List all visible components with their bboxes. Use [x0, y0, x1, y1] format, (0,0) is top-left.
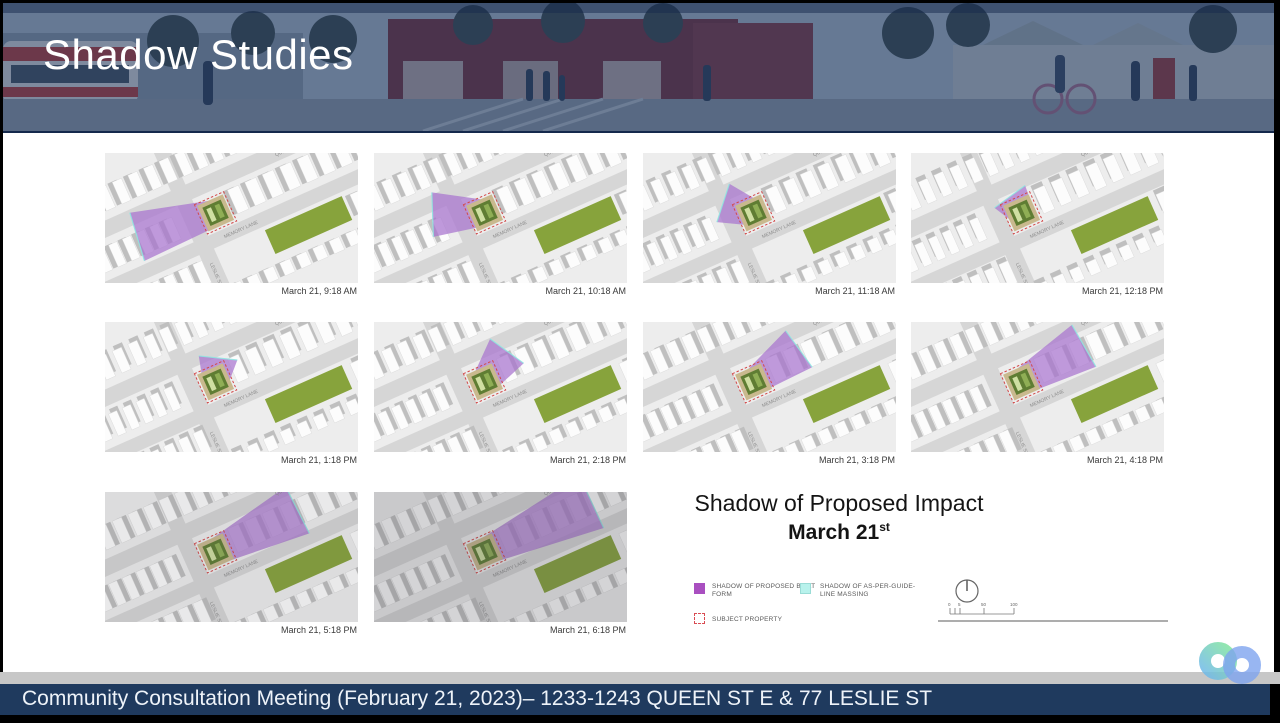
scale-tick: 50	[981, 602, 987, 607]
shadow-map-panel: QUEEN STMEMORY LANELESLIE STMarch 21, 11…	[643, 153, 896, 296]
legend-swatch-subject-property	[694, 613, 705, 624]
page-title: Shadow Studies	[43, 31, 354, 79]
shadow-map: QUEEN STMEMORY LANELESLIE ST	[105, 153, 358, 283]
panel-timestamp: March 21, 11:18 AM	[643, 286, 896, 296]
shadow-map-panel: QUEEN STMEMORY LANELESLIE STMarch 21, 5:…	[105, 492, 358, 635]
panel-timestamp: March 21, 10:18 AM	[374, 286, 627, 296]
shadow-map-panel: QUEEN STMEMORY LANELESLIE STMarch 21, 2:…	[374, 322, 627, 465]
panel-timestamp: March 21, 1:18 PM	[105, 455, 358, 465]
panel-timestamp: March 21, 4:18 PM	[911, 455, 1164, 465]
panel-timestamp: March 21, 5:18 PM	[105, 625, 358, 635]
scale-tick: 5	[958, 602, 961, 607]
shadow-map: QUEEN STMEMORY LANELESLIE ST	[105, 322, 358, 452]
legend-label-subject-property: SUBJECT PROPERTY	[712, 616, 818, 624]
shadow-map-panel: QUEEN STMEMORY LANELESLIE STMarch 21, 6:…	[374, 492, 627, 635]
shadow-map: QUEEN STMEMORY LANELESLIE ST	[911, 153, 1164, 283]
legend-swatch-proposed-shadow	[694, 583, 705, 594]
presentation-slide: Shadow Studies QUEEN STMEMORY LANELESLIE…	[0, 0, 1280, 723]
shadow-map: QUEEN STMEMORY LANELESLIE ST	[374, 153, 627, 283]
shadow-map-panel: QUEEN STMEMORY LANELESLIE STMarch 21, 10…	[374, 153, 627, 296]
legend-label-guideline-shadow: SHADOW OF AS-PER-GUIDE-LINE MASSING	[820, 583, 926, 599]
slide-header: Shadow Studies	[3, 3, 1274, 133]
shadow-map-panel: QUEEN STMEMORY LANELESLIE STMarch 21, 3:…	[643, 322, 896, 465]
shadow-map-panel: QUEEN STMEMORY LANELESLIE STMarch 21, 12…	[911, 153, 1164, 296]
caption-title: Shadow of Proposed Impact	[653, 490, 1025, 517]
scale-tick: 0	[948, 602, 951, 607]
shadow-map: QUEEN STMEMORY LANELESLIE ST	[643, 322, 896, 452]
bottom-gray-strip	[0, 672, 1280, 684]
panel-timestamp: March 21, 6:18 PM	[374, 625, 627, 635]
footer-text: Community Consultation Meeting (February…	[22, 687, 932, 710]
panel-timestamp: March 21, 3:18 PM	[643, 455, 896, 465]
scale-tick: 100	[1010, 602, 1018, 607]
shadow-map-panel: QUEEN STMEMORY LANELESLIE STMarch 21, 4:…	[911, 322, 1164, 465]
north-arrow-icon	[956, 580, 978, 602]
shadow-map: QUEEN STMEMORY LANELESLIE ST	[643, 153, 896, 283]
footer-bar: Community Consultation Meeting (February…	[0, 684, 1270, 715]
panel-timestamp: March 21, 12:18 PM	[911, 286, 1164, 296]
webex-logo	[1192, 634, 1268, 696]
legend-swatch-guideline-shadow	[800, 583, 811, 594]
panel-timestamp: March 21, 2:18 PM	[374, 455, 627, 465]
shadow-map: QUEEN STMEMORY LANELESLIE ST	[911, 322, 1164, 452]
scale-bar	[950, 608, 1014, 614]
shadow-map-panel: QUEEN STMEMORY LANELESLIE STMarch 21, 1:…	[105, 322, 358, 465]
caption-block: Shadow of Proposed Impact March 21st	[653, 490, 1025, 545]
shadow-map: QUEEN STMEMORY LANELESLIE ST	[374, 492, 627, 622]
caption-date: March 21st	[653, 520, 1025, 545]
shadow-map: QUEEN STMEMORY LANELESLIE ST	[105, 492, 358, 622]
north-arrow-and-scale: 0 5 50 100	[938, 574, 1173, 626]
shadow-map: QUEEN STMEMORY LANELESLIE ST	[374, 322, 627, 452]
shadow-map-panel: QUEEN STMEMORY LANELESLIE STMarch 21, 9:…	[105, 153, 358, 296]
panel-timestamp: March 21, 9:18 AM	[105, 286, 358, 296]
